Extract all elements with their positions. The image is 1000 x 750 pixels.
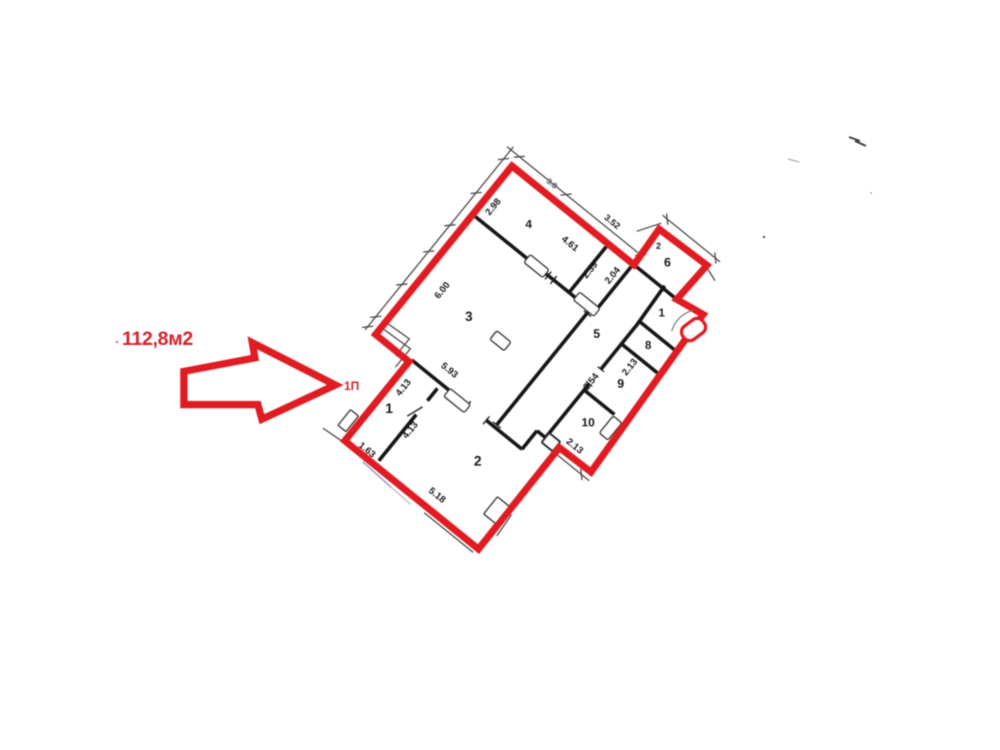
svg-text:2: 2: [656, 241, 661, 251]
svg-text:1: 1: [658, 307, 665, 319]
svg-text:112,8м2: 112,8м2: [122, 328, 193, 350]
svg-text:1П: 1П: [344, 379, 359, 393]
svg-text:10: 10: [581, 415, 595, 429]
svg-text:3: 3: [465, 309, 473, 324]
svg-text:6: 6: [664, 255, 671, 269]
svg-text:8: 8: [645, 340, 652, 352]
svg-text:9: 9: [617, 377, 624, 391]
svg-text:2: 2: [474, 453, 482, 469]
svg-text:5: 5: [593, 327, 600, 341]
svg-text:1: 1: [385, 400, 393, 416]
svg-text:4: 4: [525, 217, 532, 231]
